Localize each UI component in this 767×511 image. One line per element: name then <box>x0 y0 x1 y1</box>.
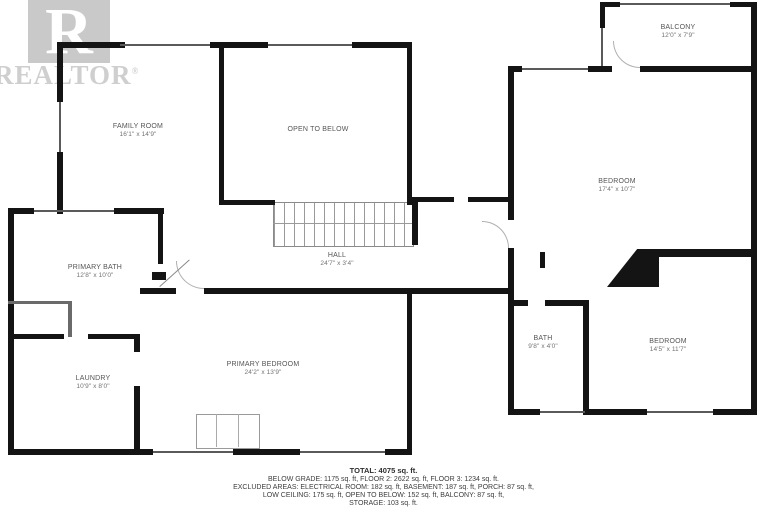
room-dims: 16'1" x 14'9" <box>78 131 198 139</box>
wall-segment <box>508 66 514 220</box>
wall-segment <box>134 386 140 455</box>
wall-segment <box>588 66 612 72</box>
wall-segment <box>8 334 64 339</box>
wall-segment <box>8 208 14 455</box>
room-name: PRIMARY BATH <box>68 264 122 271</box>
room-dims: 12'0" x 7'9" <box>628 32 728 40</box>
room-label-bath: BATH 9'8" x 4'0" <box>513 334 573 352</box>
room-label-bedroom-right: BEDROOM 17'4" x 10'7" <box>557 177 677 195</box>
realtor-logo-letter: R <box>45 0 93 68</box>
area-line: LOW CEILING: 175 sq. ft, OPEN TO BELOW: … <box>0 492 767 500</box>
wall-segment <box>508 248 514 415</box>
wall-segment <box>224 42 268 48</box>
wall-segment <box>407 288 412 455</box>
wall-segment <box>540 252 545 268</box>
room-dims: 10'9" x 8'0" <box>33 383 153 391</box>
room-name: BEDROOM <box>598 178 636 185</box>
wall-segment <box>508 409 540 415</box>
room-dims: 14'5" x 11'7" <box>608 346 728 354</box>
wall-segment <box>114 208 164 214</box>
window-line <box>120 44 210 46</box>
railing-line <box>601 28 603 68</box>
floor-plan: R REALTOR® <box>0 0 767 511</box>
room-dims: 24'7" x 3'4" <box>277 260 397 268</box>
fixture-line <box>68 301 72 337</box>
window-line <box>153 451 233 453</box>
window-line <box>300 451 385 453</box>
wall-segment <box>352 42 412 48</box>
room-label-primary-bath: PRIMARY BATH 12'8" x 10'0" <box>35 263 155 281</box>
area-line: STORAGE: 103 sq. ft. <box>0 500 767 508</box>
window-line <box>647 411 713 413</box>
window-line <box>620 3 730 5</box>
realtor-logo: R <box>28 0 110 63</box>
door-arc <box>613 41 640 68</box>
room-label-primary-bedroom: PRIMARY BEDROOM 24'2" x 13'9" <box>203 360 323 378</box>
room-name: PRIMARY BEDROOM <box>227 361 300 368</box>
wall-segment <box>140 288 176 294</box>
wall-segment <box>88 334 140 339</box>
room-label-open-to-below: OPEN TO BELOW <box>258 125 378 134</box>
room-name: FAMILY ROOM <box>113 123 163 130</box>
wall-segment <box>158 208 163 264</box>
room-dims: 9'8" x 4'0" <box>513 343 573 351</box>
wall-segment <box>468 197 508 202</box>
wall-segment <box>134 334 140 352</box>
wall-segment <box>713 409 757 415</box>
window-line <box>540 411 585 413</box>
area-line: EXCLUDED AREAS: ELECTRICAL ROOM: 182 sq.… <box>0 484 767 492</box>
room-label-laundry: LAUNDRY 10'9" x 8'0" <box>33 374 153 392</box>
wall-segment <box>57 42 125 48</box>
staircase <box>273 202 414 247</box>
furniture-line <box>238 414 239 447</box>
fireplace-wedge <box>607 249 659 287</box>
wall-segment <box>585 409 647 415</box>
total-area: TOTAL: 4075 sq. ft. <box>0 467 767 476</box>
furniture-line <box>216 414 217 447</box>
room-name: HALL <box>328 252 346 259</box>
room-label-hall: HALL 24'7" x 3'4" <box>277 251 397 269</box>
wall-segment <box>412 197 454 202</box>
wall-segment <box>751 2 757 415</box>
room-name: OPEN TO BELOW <box>287 126 348 133</box>
wall-segment <box>412 200 418 245</box>
realtor-wordmark: REALTOR <box>0 60 132 90</box>
room-label-bedroom-bottom: BEDROOM 14'5" x 11'7" <box>608 337 728 355</box>
wall-segment <box>57 152 63 214</box>
wall-segment <box>8 449 153 455</box>
realtor-watermark: REALTOR® <box>0 60 164 91</box>
room-dims: 12'8" x 10'0" <box>35 272 155 280</box>
staircase-midline <box>273 223 412 224</box>
wall-segment <box>640 66 757 72</box>
room-label-family-room: FAMILY ROOM 16'1" x 14'9" <box>78 122 198 140</box>
wall-segment <box>233 449 300 455</box>
door-arc <box>176 261 204 289</box>
wall-segment <box>508 300 528 306</box>
room-dims: 24'2" x 13'9" <box>203 369 323 377</box>
wall-segment <box>57 42 63 102</box>
door-arc <box>482 221 509 248</box>
wall-segment <box>412 288 508 294</box>
fixture-line <box>8 301 72 304</box>
wall-segment <box>600 2 605 28</box>
window-line <box>522 68 588 70</box>
window-line <box>59 102 61 152</box>
wall-segment <box>204 288 408 294</box>
room-dims: 17'4" x 10'7" <box>557 186 677 194</box>
room-name: LAUNDRY <box>76 375 111 382</box>
wall-segment <box>407 42 412 205</box>
wall-segment <box>219 200 275 205</box>
wall-segment <box>655 249 755 257</box>
wall-segment <box>583 300 589 415</box>
room-name: BALCONY <box>661 24 696 31</box>
furniture-dresser <box>196 414 260 449</box>
wall-segment <box>219 42 224 205</box>
area-summary: TOTAL: 4075 sq. ft. BELOW GRADE: 1175 sq… <box>0 467 767 508</box>
room-label-balcony: BALCONY 12'0" x 7'9" <box>628 23 728 41</box>
room-name: BATH <box>534 335 553 342</box>
window-line <box>268 44 352 46</box>
registered-mark: ® <box>132 66 140 76</box>
window-line <box>34 210 114 212</box>
room-name: BEDROOM <box>649 338 687 345</box>
area-line: BELOW GRADE: 1175 sq. ft, FLOOR 2: 2622 … <box>0 476 767 484</box>
